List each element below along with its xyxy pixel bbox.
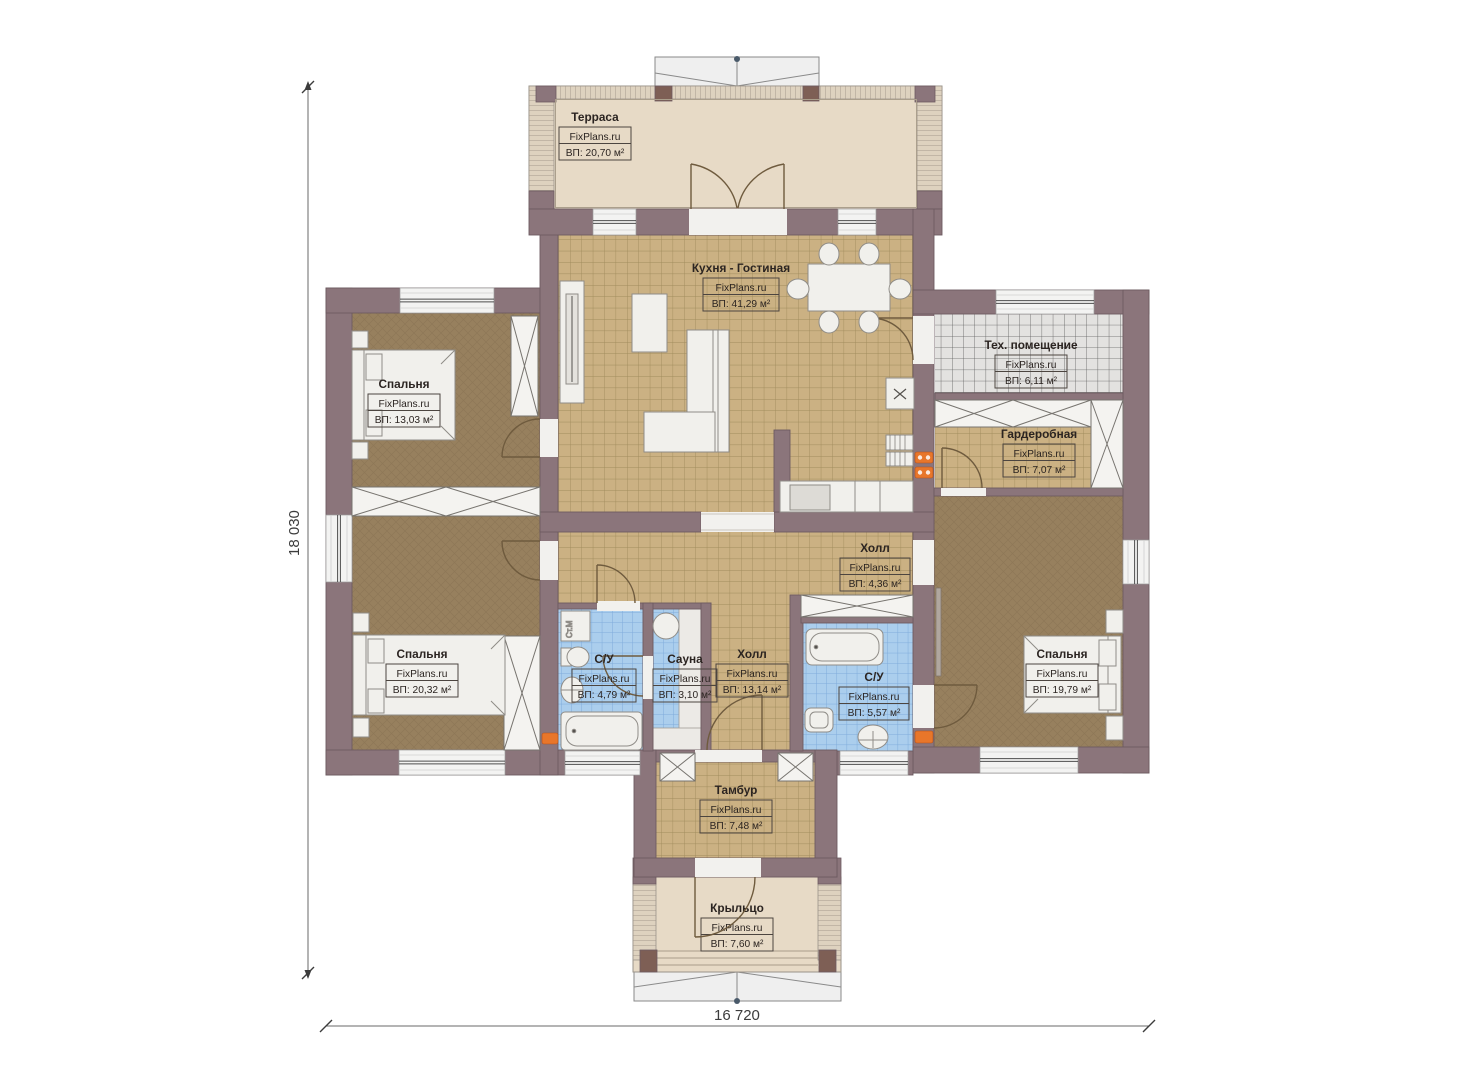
svg-text:ВП: 13,14 м²: ВП: 13,14 м² bbox=[723, 685, 782, 696]
svg-text:ВП: 19,79 м²: ВП: 19,79 м² bbox=[1033, 685, 1092, 696]
svg-text:ВП: 4,36 м²: ВП: 4,36 м² bbox=[849, 579, 902, 590]
svg-text:FixPlans.ru: FixPlans.ru bbox=[711, 805, 762, 816]
svg-text:ВП: 6,11 м²: ВП: 6,11 м² bbox=[1005, 376, 1058, 387]
svg-text:ВП: 7,07 м²: ВП: 7,07 м² bbox=[1013, 465, 1066, 476]
svg-text:FixPlans.ru: FixPlans.ru bbox=[660, 674, 711, 685]
svg-text:FixPlans.ru: FixPlans.ru bbox=[727, 669, 778, 680]
svg-text:ВП: 20,70 м²: ВП: 20,70 м² bbox=[566, 148, 625, 159]
svg-text:ВП: 4,79 м²: ВП: 4,79 м² bbox=[578, 690, 631, 701]
svg-text:FixPlans.ru: FixPlans.ru bbox=[379, 399, 430, 410]
svg-text:Крыльцо: Крыльцо bbox=[710, 901, 764, 915]
svg-text:ВП: 5,57 м²: ВП: 5,57 м² bbox=[848, 708, 901, 719]
svg-text:Холл: Холл bbox=[737, 647, 767, 661]
svg-text:Сауна: Сауна bbox=[667, 652, 703, 666]
svg-text:Тамбур: Тамбур bbox=[715, 783, 758, 797]
svg-text:FixPlans.ru: FixPlans.ru bbox=[1014, 449, 1065, 460]
svg-text:ВП: 41,29 м²: ВП: 41,29 м² bbox=[712, 299, 771, 310]
svg-text:FixPlans.ru: FixPlans.ru bbox=[716, 283, 767, 294]
svg-text:Спальня: Спальня bbox=[1037, 647, 1088, 661]
svg-text:ВП: 7,48 м²: ВП: 7,48 м² bbox=[710, 821, 763, 832]
svg-text:Тех. помещение: Тех. помещение bbox=[984, 338, 1077, 352]
svg-text:FixPlans.ru: FixPlans.ru bbox=[570, 132, 621, 143]
svg-text:FixPlans.ru: FixPlans.ru bbox=[397, 669, 448, 680]
svg-text:Холл: Холл bbox=[860, 541, 890, 555]
svg-text:FixPlans.ru: FixPlans.ru bbox=[1037, 669, 1088, 680]
svg-text:ВП: 7,60 м²: ВП: 7,60 м² bbox=[711, 939, 764, 950]
svg-text:Терраса: Терраса bbox=[571, 110, 619, 124]
svg-text:ВП: 20,32 м²: ВП: 20,32 м² bbox=[393, 685, 452, 696]
svg-text:С/У: С/У bbox=[594, 652, 614, 666]
svg-text:18 030: 18 030 bbox=[286, 510, 303, 556]
svg-text:FixPlans.ru: FixPlans.ru bbox=[850, 563, 901, 574]
svg-text:FixPlans.ru: FixPlans.ru bbox=[849, 692, 900, 703]
svg-text:ВП: 3,10 м²: ВП: 3,10 м² bbox=[659, 690, 712, 701]
svg-text:Спальня: Спальня bbox=[397, 647, 448, 661]
svg-text:ВП: 13,03 м²: ВП: 13,03 м² bbox=[375, 415, 434, 426]
svg-text:FixPlans.ru: FixPlans.ru bbox=[579, 674, 630, 685]
svg-text:Кухня - Гостиная: Кухня - Гостиная bbox=[692, 261, 790, 275]
svg-text:Гардеробная: Гардеробная bbox=[1001, 427, 1077, 441]
svg-text:Ст.М: Ст.М bbox=[565, 620, 574, 638]
svg-text:Спальня: Спальня bbox=[379, 377, 430, 391]
svg-text:FixPlans.ru: FixPlans.ru bbox=[1006, 360, 1057, 371]
svg-text:16 720: 16 720 bbox=[714, 1007, 760, 1024]
svg-text:С/У: С/У bbox=[864, 670, 884, 684]
